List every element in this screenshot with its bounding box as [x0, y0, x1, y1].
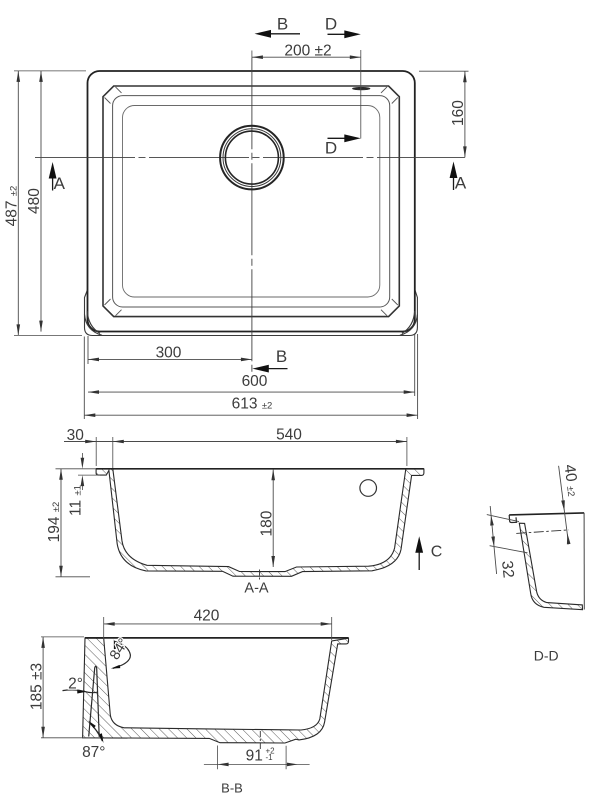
svg-text:84°: 84°: [107, 636, 132, 663]
svg-text:A-A: A-A: [244, 581, 269, 597]
svg-text:D-D: D-D: [534, 648, 559, 664]
svg-text:300: 300: [156, 345, 182, 362]
svg-text:180: 180: [258, 510, 275, 536]
svg-text:11 ±1: 11 ±1: [68, 485, 85, 516]
svg-text:540: 540: [276, 427, 302, 444]
svg-text:480: 480: [26, 188, 43, 214]
svg-text:487 ±2: 487 ±2: [3, 186, 20, 227]
svg-text:613 ±2: 613 ±2: [232, 396, 273, 413]
svg-text:C: C: [431, 544, 443, 561]
svg-text:600: 600: [242, 373, 268, 390]
svg-text:B: B: [276, 347, 287, 366]
svg-text:D: D: [325, 15, 337, 34]
svg-text:194 ±2: 194 ±2: [46, 502, 63, 543]
svg-text:A: A: [455, 174, 467, 193]
svg-text:-1: -1: [266, 753, 274, 762]
svg-text:160: 160: [450, 100, 467, 126]
svg-text:B: B: [277, 15, 288, 34]
svg-text:D: D: [325, 139, 337, 158]
svg-text:185 ±3: 185 ±3: [28, 663, 45, 710]
svg-text:B-B: B-B: [221, 780, 243, 795]
svg-text:91: 91: [246, 747, 263, 764]
svg-text:32: 32: [498, 560, 517, 579]
svg-text:A: A: [54, 174, 66, 193]
svg-text:420: 420: [194, 608, 220, 625]
svg-text:2°: 2°: [68, 676, 83, 693]
svg-text:87°: 87°: [82, 744, 105, 761]
svg-text:40 ±2: 40 ±2: [561, 464, 582, 498]
svg-text:200 ±2: 200 ±2: [284, 43, 331, 60]
svg-text:30: 30: [67, 427, 85, 444]
